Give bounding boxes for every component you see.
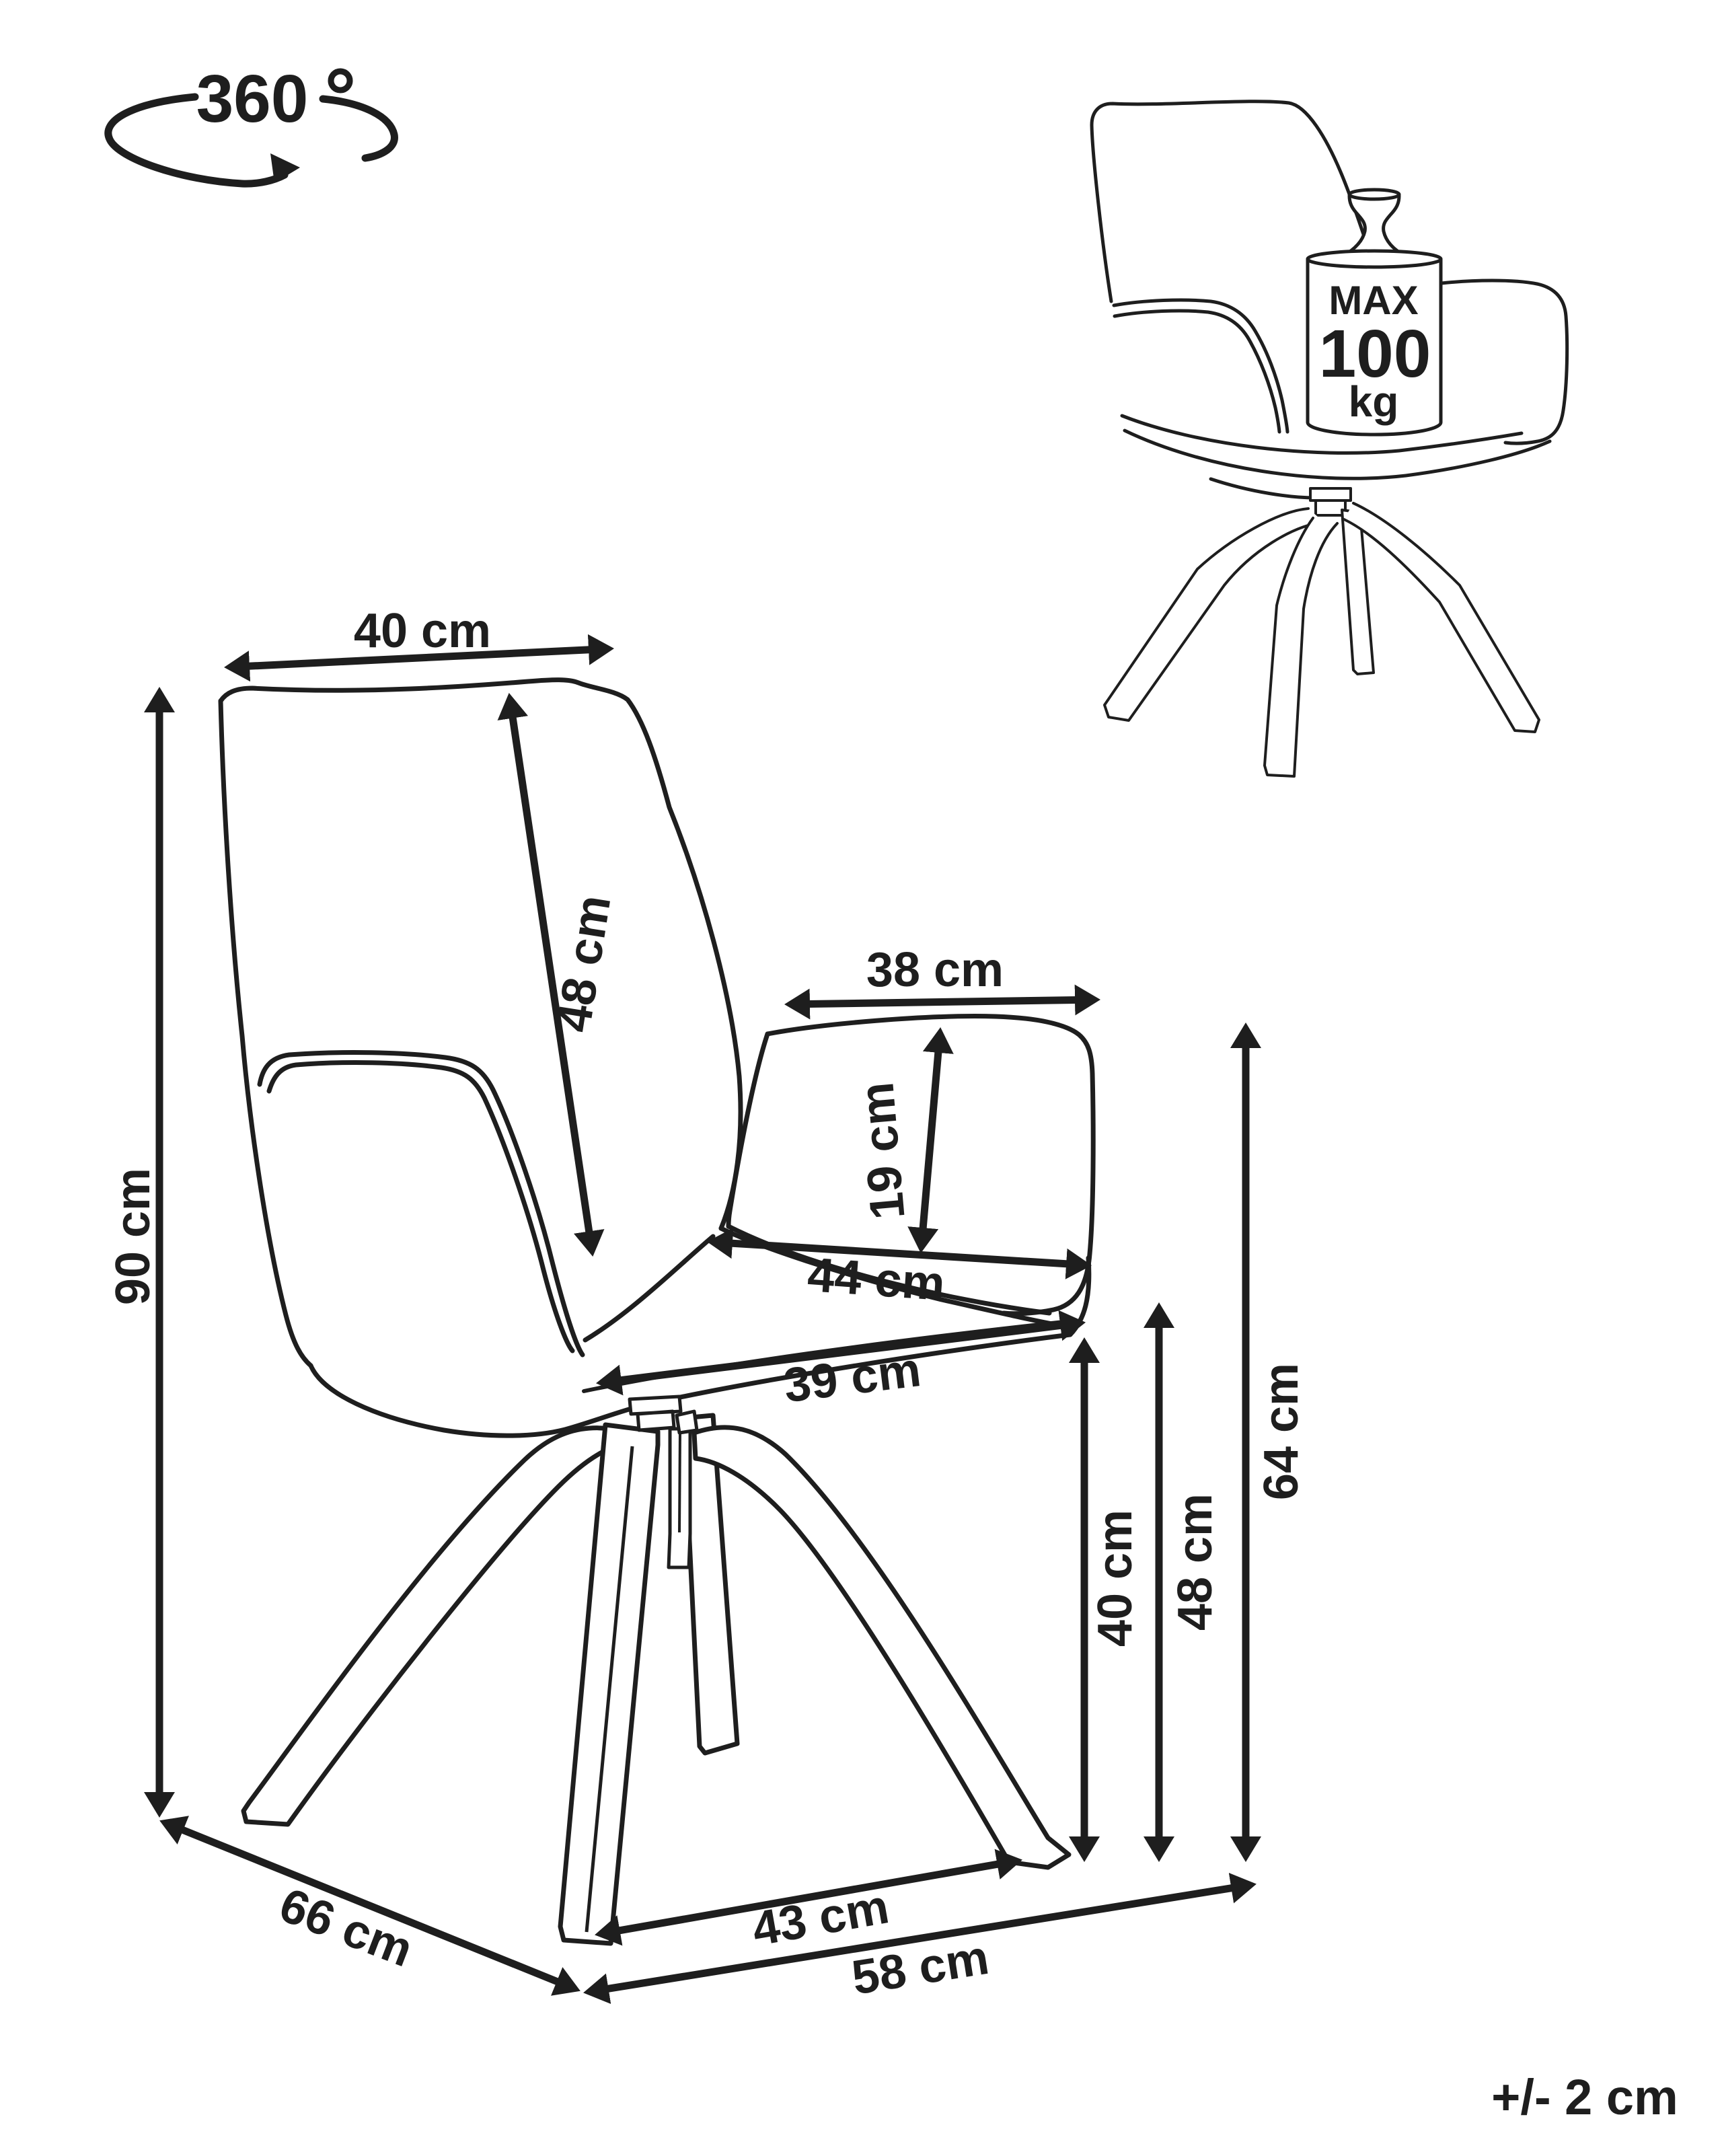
svg-text:90 cm: 90 cm <box>106 1168 160 1305</box>
svg-text:40 cm: 40 cm <box>354 604 491 658</box>
svg-text:19 cm: 19 cm <box>850 1080 915 1222</box>
svg-text:360: 360 <box>196 61 309 137</box>
svg-text:+/- 2 cm: +/- 2 cm <box>1491 2069 1678 2125</box>
svg-text:44 cm: 44 cm <box>806 1248 946 1311</box>
svg-text:64 cm: 64 cm <box>1255 1363 1308 1500</box>
svg-text:40 cm: 40 cm <box>1088 1510 1142 1647</box>
svg-text:kg: kg <box>1349 377 1399 426</box>
svg-text:48 cm: 48 cm <box>546 891 621 1035</box>
svg-text:58 cm: 58 cm <box>848 1931 992 2005</box>
svg-text:38 cm: 38 cm <box>866 943 1004 997</box>
svg-text:48 cm: 48 cm <box>1168 1493 1222 1631</box>
